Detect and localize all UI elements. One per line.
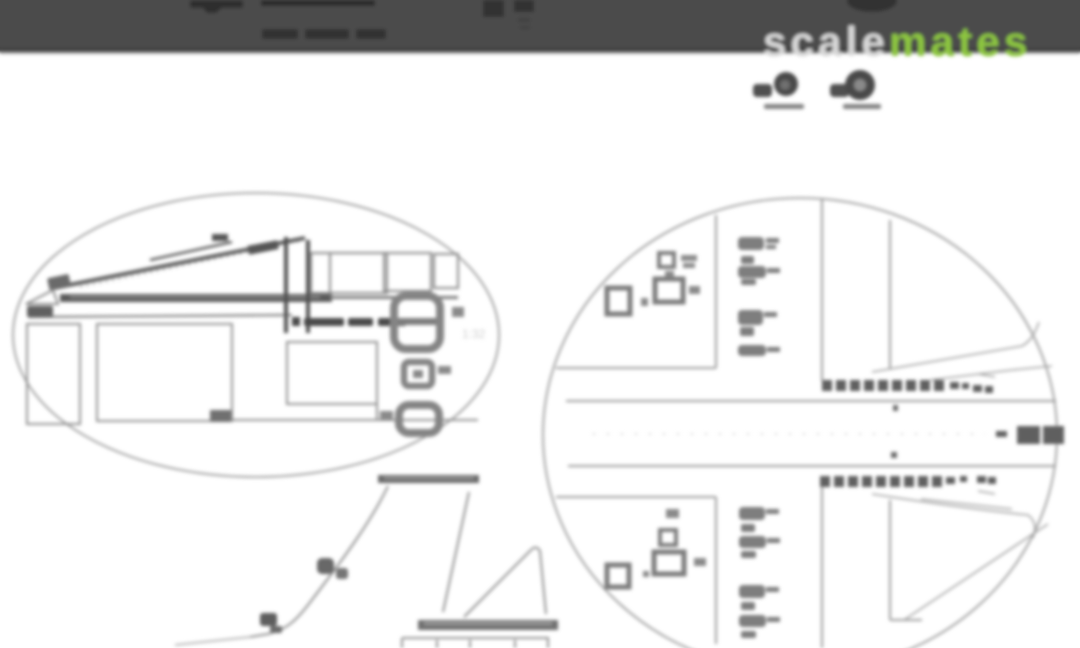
svg-text:1:32: 1:32: [462, 327, 486, 341]
svg-text:scalemates: scalemates: [763, 18, 1032, 65]
